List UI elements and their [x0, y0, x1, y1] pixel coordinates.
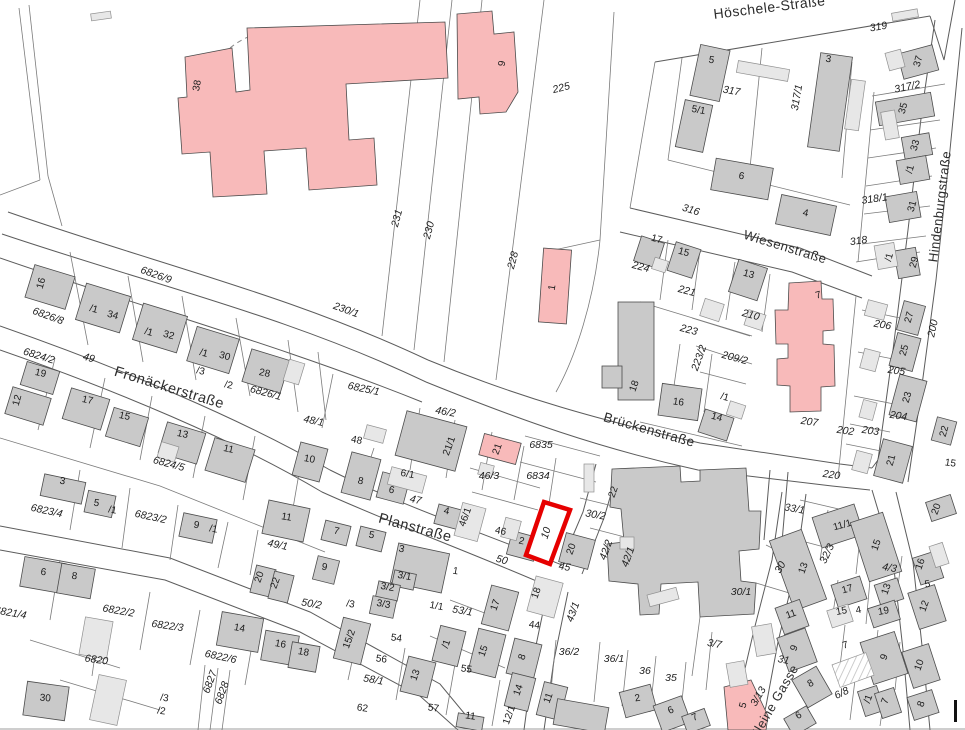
parcel-label: 53/1	[451, 603, 473, 618]
outbuilding	[752, 623, 777, 656]
parcel-label: 30/1	[731, 586, 751, 598]
house-number-label: 48	[350, 434, 364, 447]
parcel-label: 49/1	[266, 537, 288, 553]
house-number-label: /1	[719, 391, 730, 404]
parcel-label: 3/7	[706, 637, 724, 652]
house-number-label: 56	[375, 653, 388, 666]
hatched-area	[832, 653, 874, 688]
scale-mark	[954, 700, 957, 722]
street-label: Wiesenstraße	[742, 227, 829, 267]
parcel-label: 36	[639, 665, 651, 677]
parcel-label: 6826/8	[31, 305, 65, 327]
house-number-label: 57	[427, 702, 440, 715]
house-number-label: 7	[841, 639, 850, 651]
outbuilding	[79, 617, 113, 659]
parcel-label: 221	[676, 283, 697, 299]
parcel-label: 228	[505, 250, 521, 271]
house-number-label: /2	[223, 379, 234, 392]
parcel-label: 6822/3	[151, 618, 185, 634]
parcel-label: 6835	[529, 439, 553, 451]
parcel-label: 203	[860, 424, 880, 438]
street-label: Höschele-Straße	[713, 0, 827, 22]
parcel-label: 230/1	[331, 300, 361, 321]
parcel-label: 6825/1	[347, 380, 381, 398]
outbuilding	[859, 399, 877, 420]
building	[25, 265, 75, 310]
outbuilding	[736, 61, 789, 82]
outbuilding	[584, 464, 594, 492]
parcel-label: 319	[869, 20, 888, 35]
parcel-label: 317	[722, 84, 742, 99]
parcel-label: 4/3	[881, 561, 898, 575]
parcel-label: 30/2	[584, 507, 606, 522]
parcel-label: 36/2	[559, 646, 580, 658]
house-number-label: 62	[356, 702, 369, 715]
street-label: Fronäckerstraße	[112, 364, 226, 413]
building-7	[775, 281, 835, 412]
parcel-label: 6820	[84, 652, 109, 667]
parcel-label: 58/1	[362, 672, 384, 687]
parcel-label: 6822/2	[102, 602, 136, 619]
outbuilding	[860, 348, 881, 371]
parcel-label: 6821/4	[0, 604, 28, 621]
parcel-label: 36/1	[604, 653, 624, 665]
house-number-label: /3	[345, 598, 356, 610]
parcel-label: 33/1	[783, 501, 805, 516]
building-9	[457, 11, 518, 114]
house-number-label: /3	[159, 692, 169, 704]
parcel-label: 316	[681, 202, 701, 219]
parcel-label: 50	[495, 553, 510, 568]
parcel-label: 6823/2	[134, 508, 168, 526]
building	[132, 303, 187, 353]
parcel-label: 318	[849, 234, 868, 248]
outbuilding	[364, 425, 387, 444]
parcel-label: 317/2	[893, 78, 921, 95]
parcel-label: 231	[389, 208, 405, 229]
parcel-label: 206	[872, 317, 892, 332]
parcel-label: 6/8	[833, 685, 851, 702]
building	[602, 366, 622, 388]
parcel-label: 230	[421, 220, 437, 241]
parcel-label: 6822/6	[204, 648, 238, 666]
parcel-label: 225	[550, 80, 571, 96]
house-number-label: /3	[195, 365, 206, 378]
house-number-label: 44	[528, 619, 541, 632]
parcel-label: 202	[835, 424, 855, 438]
house-number-label: 29	[908, 255, 922, 269]
outbuilding	[700, 298, 725, 321]
parcel-label: 223	[678, 322, 699, 338]
house-number-label: 4	[855, 605, 863, 617]
house-number-label: /2	[156, 705, 166, 717]
house-number-label: 54	[390, 632, 403, 645]
outbuilding	[90, 675, 127, 726]
parcel-label: 6823/4	[30, 502, 64, 520]
house-number-label: 30	[39, 693, 51, 705]
house-number-label: 11	[464, 710, 476, 722]
parcel-label: 35	[665, 672, 677, 684]
parcel-label: 220	[821, 468, 841, 482]
building	[553, 699, 609, 730]
parcel-label: 318/1	[861, 191, 889, 207]
parcel-label: 210	[740, 307, 761, 323]
parcel-label: 48/1	[302, 413, 324, 429]
cadastral-map: Höschele-StraßeFronäckerstraßePlanstraße…	[0, 0, 965, 730]
parcel-label: 207	[799, 415, 820, 430]
house-number-label: 16	[672, 396, 685, 409]
house-number-label: /1	[107, 504, 118, 516]
parcel-label: 32/3	[818, 542, 838, 566]
house-number-label: 15	[944, 457, 957, 470]
parcel-label: 204	[888, 409, 908, 423]
building	[75, 283, 130, 333]
house-number-label: 1	[452, 566, 460, 578]
outbuilding	[726, 661, 748, 688]
outbuilding	[91, 11, 112, 21]
house-number-label: /1	[208, 523, 219, 535]
parcel-label: 31	[777, 653, 791, 667]
parcel-label: 43/1	[564, 600, 582, 623]
parcel-label: 49	[82, 351, 97, 366]
outbuilding	[852, 450, 873, 473]
house-number-label: 1/1	[429, 600, 445, 613]
outbuilding	[892, 9, 919, 21]
parcel-label: 47	[409, 493, 424, 507]
parcel-label: 45	[558, 560, 572, 574]
parcel-label: 46/3	[479, 470, 500, 482]
house-number-label: 55	[460, 663, 473, 676]
parcel-label: 46/2	[434, 404, 456, 419]
parcel-label: 6834	[526, 470, 550, 482]
parcel-label: 223/2	[689, 343, 710, 373]
parcel-label: 205	[886, 364, 906, 378]
building	[5, 387, 51, 425]
house-number-label: 12/1	[501, 704, 518, 726]
parcel-label: 317/1	[789, 83, 805, 111]
map-canvas: Höschele-StraßeFronäckerstraßePlanstraße…	[0, 0, 965, 730]
parcel-label: 209/2	[720, 349, 750, 368]
parcel-label: 200	[925, 318, 941, 339]
